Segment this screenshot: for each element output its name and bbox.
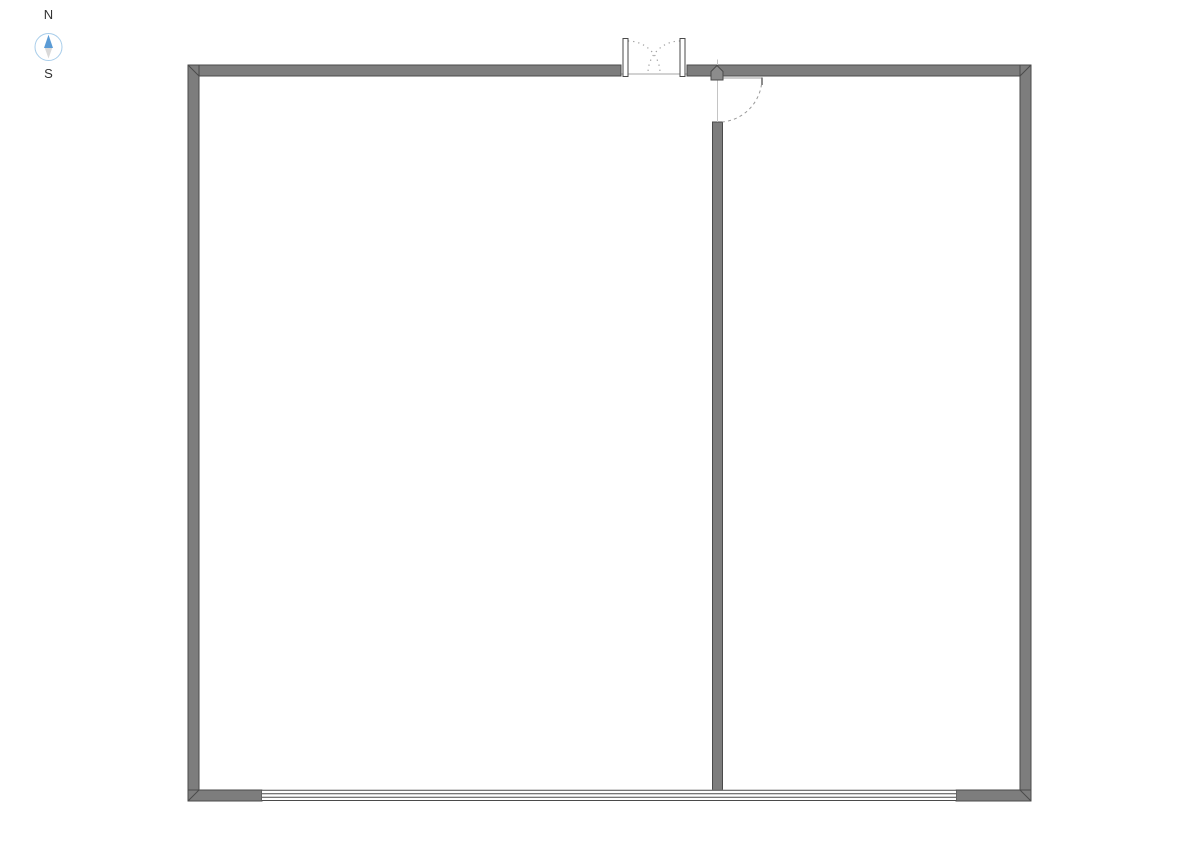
wall-bottom-left-segment bbox=[188, 790, 262, 801]
double-door-right-leaf bbox=[680, 39, 685, 77]
double-door-left-swing-arc bbox=[628, 41, 660, 73]
wall-bottom-right-segment bbox=[956, 790, 1031, 801]
compass-south-label: S bbox=[44, 66, 53, 81]
double-door-left-leaf bbox=[623, 39, 628, 77]
floor-plan-canvas: N S bbox=[0, 0, 1191, 842]
floor-plan-page: N S bbox=[0, 0, 1191, 842]
walls bbox=[188, 65, 1031, 801]
window-glazing-fill bbox=[262, 790, 956, 801]
compass-north-label: N bbox=[44, 7, 53, 22]
wall-top-right-segment bbox=[687, 65, 1031, 76]
double-door-right-swing-arc bbox=[648, 41, 680, 73]
window-strip bbox=[262, 790, 956, 801]
wall-top-left-segment bbox=[188, 65, 621, 76]
interior-door-swing-arc bbox=[723, 85, 762, 123]
double-door bbox=[622, 39, 687, 77]
wall-right bbox=[1020, 65, 1031, 801]
compass: N S bbox=[35, 7, 62, 81]
wall-interior-partition bbox=[713, 122, 723, 790]
wall-left bbox=[188, 65, 199, 801]
